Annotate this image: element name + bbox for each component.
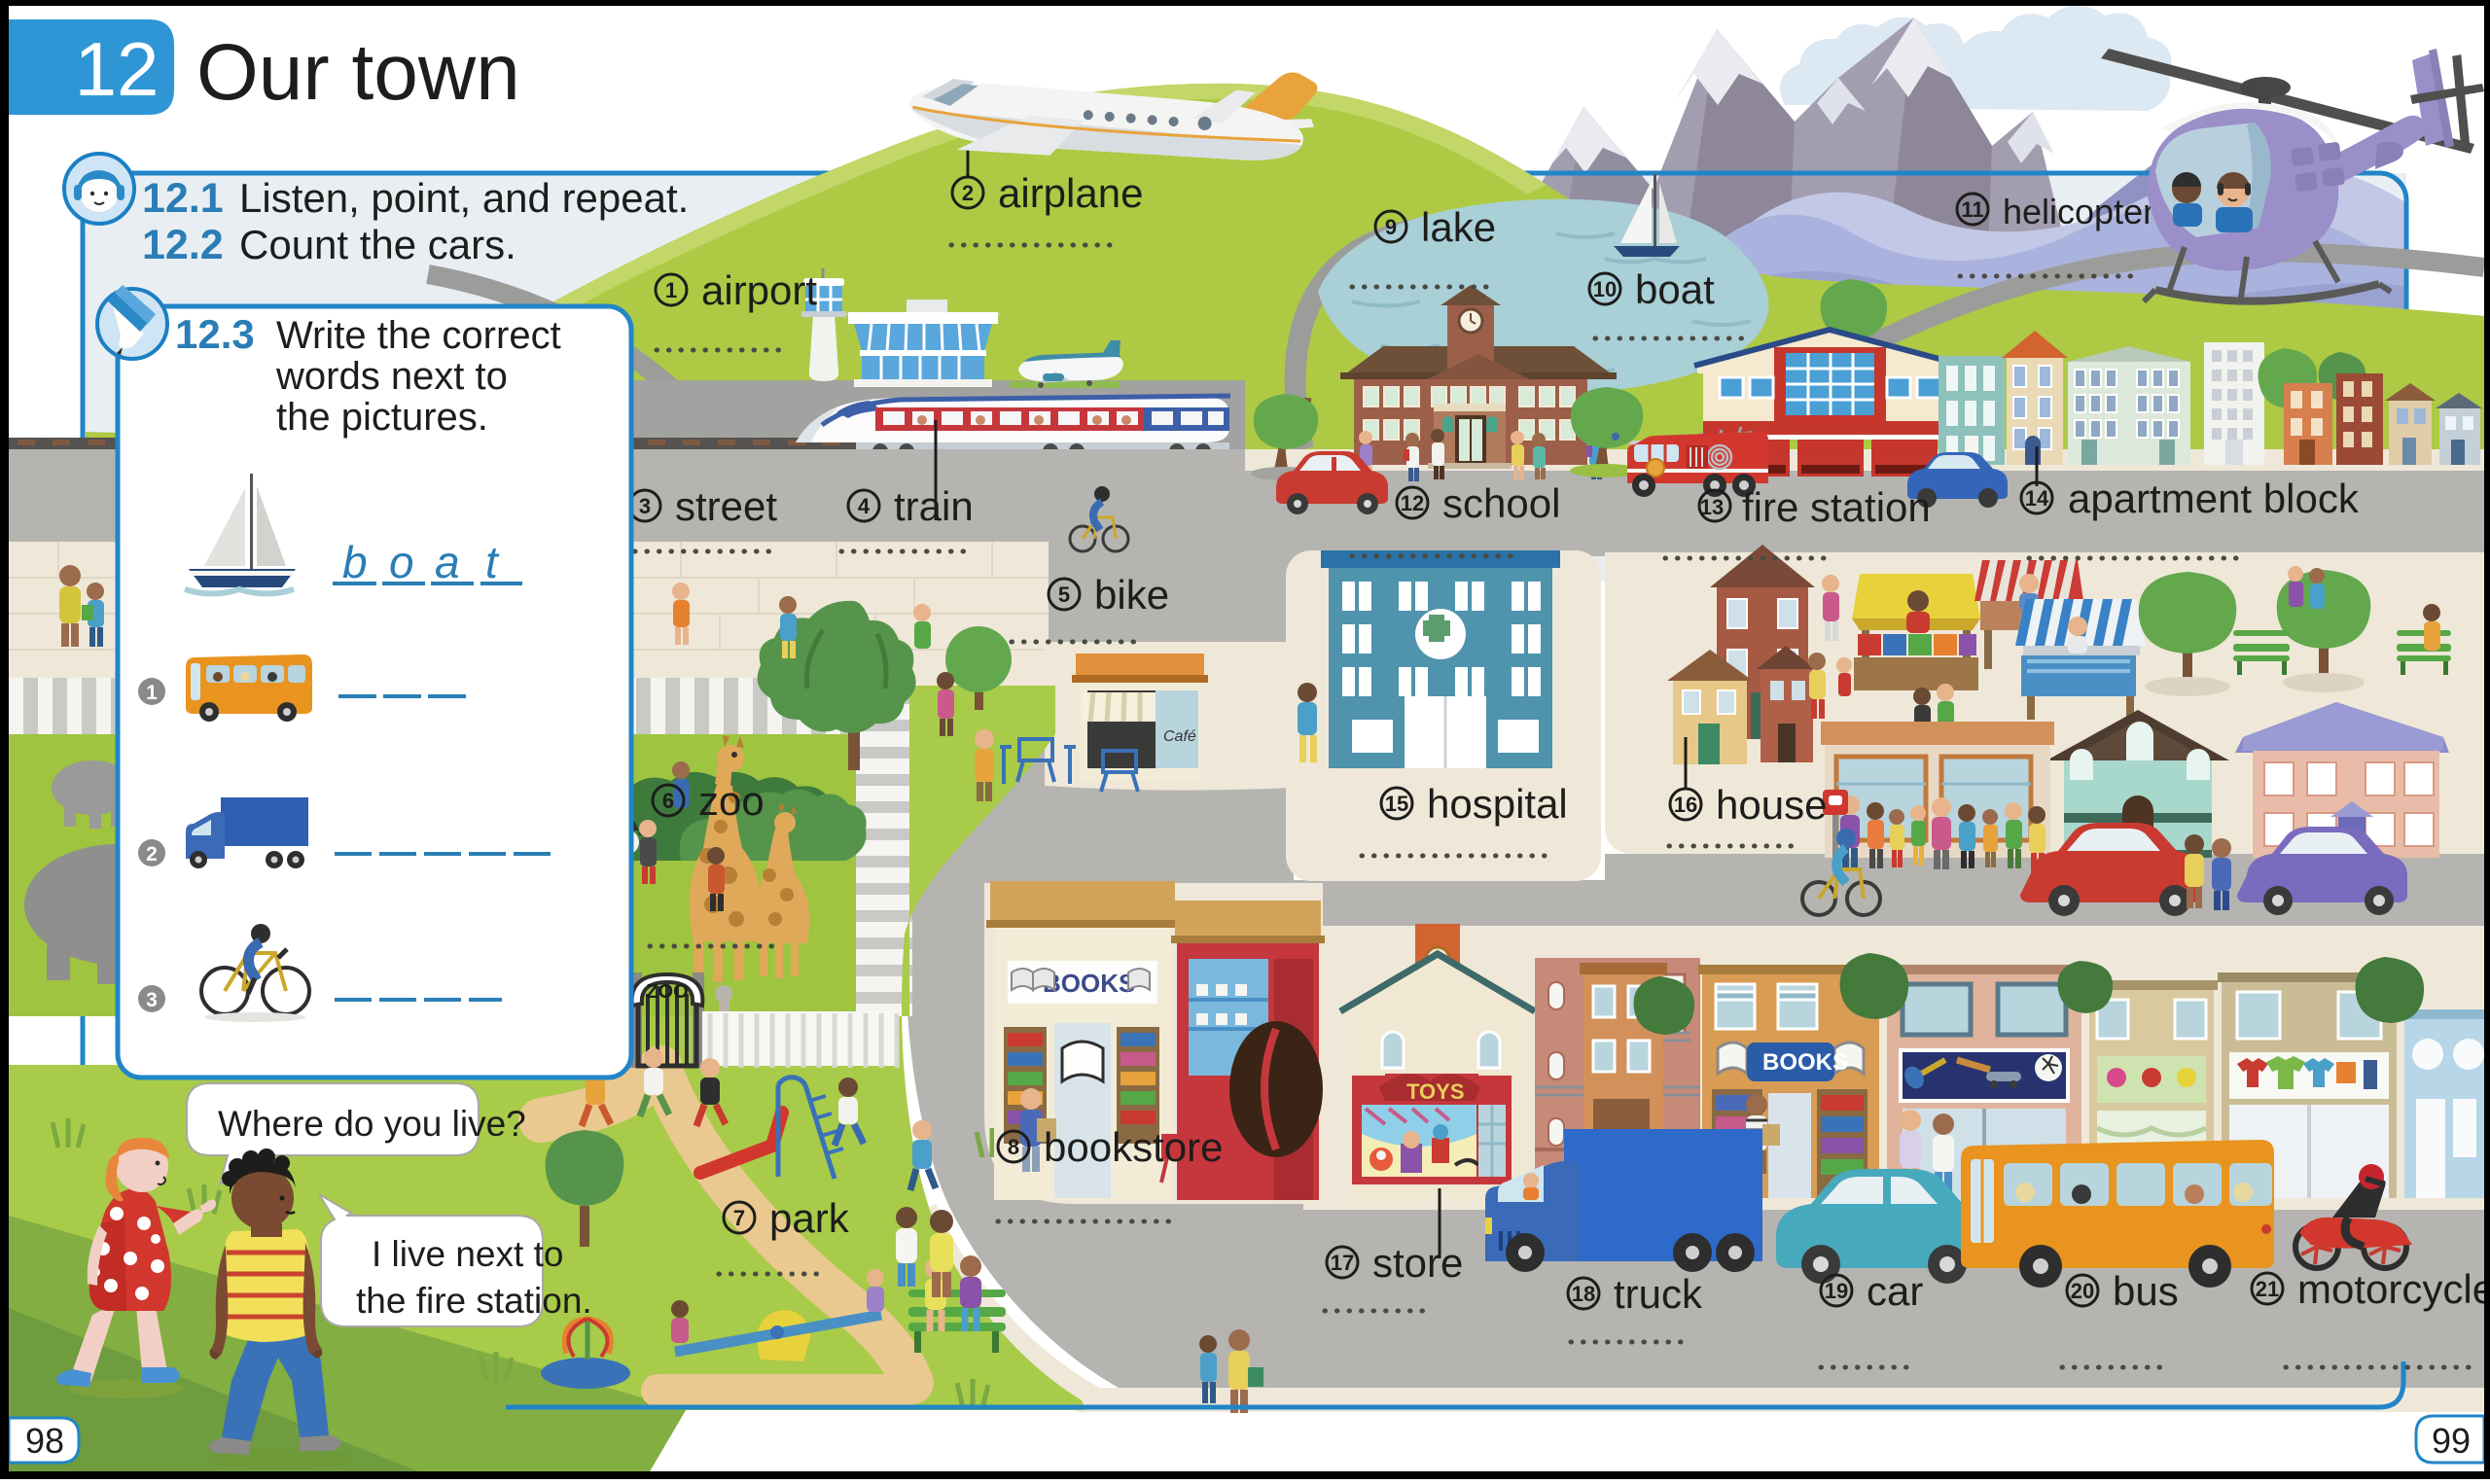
svg-text:hospital: hospital: [1427, 781, 1568, 827]
svg-text:zoo: zoo: [698, 778, 765, 824]
svg-text:11: 11: [1961, 197, 1983, 222]
svg-text:motorcycle: motorcycle: [2297, 1266, 2490, 1312]
svg-text:a: a: [435, 537, 460, 587]
svg-text:Write the correct: Write the correct: [276, 314, 561, 357]
svg-text:17: 17: [1331, 1251, 1354, 1275]
svg-text:bookstore: bookstore: [1044, 1124, 1223, 1170]
svg-text:Our town: Our town: [196, 28, 520, 117]
svg-text:4: 4: [858, 494, 871, 518]
svg-text:park: park: [769, 1195, 850, 1241]
svg-text:the pictures.: the pictures.: [276, 396, 488, 439]
svg-text:helicopter: helicopter: [2003, 192, 2154, 231]
svg-text:1: 1: [146, 682, 158, 704]
svg-text:18: 18: [1572, 1282, 1595, 1306]
svg-text:12.1: 12.1: [142, 175, 224, 222]
svg-text:98: 98: [25, 1421, 64, 1461]
svg-text:car: car: [1867, 1268, 1923, 1314]
svg-text:21: 21: [2256, 1277, 2279, 1301]
svg-text:TOYS: TOYS: [1406, 1079, 1465, 1104]
svg-text:12.2: 12.2: [142, 222, 224, 268]
svg-text:6: 6: [662, 789, 674, 813]
svg-text:Count the cars.: Count the cars.: [239, 222, 516, 267]
svg-text:20: 20: [2071, 1279, 2094, 1303]
svg-text:Where do you live?: Where do you live?: [218, 1104, 526, 1144]
svg-text:5: 5: [1058, 583, 1070, 607]
svg-text:BOOKS: BOOKS: [1762, 1049, 1848, 1076]
svg-text:school: school: [1442, 480, 1560, 526]
svg-text:12: 12: [75, 26, 160, 112]
svg-text:truck: truck: [1614, 1271, 1703, 1317]
svg-text:BOOKS: BOOKS: [1043, 969, 1135, 998]
svg-text:house: house: [1716, 782, 1827, 828]
svg-text:2: 2: [962, 181, 974, 205]
svg-text:t: t: [485, 537, 500, 587]
svg-text:9: 9: [1385, 215, 1397, 239]
svg-text:Listen, point, and repeat.: Listen, point, and repeat.: [239, 175, 689, 221]
svg-text:words next to: words next to: [275, 355, 508, 398]
svg-text:10: 10: [1593, 277, 1617, 301]
svg-text:apartment block: apartment block: [2068, 476, 2360, 521]
svg-text:I live next to: I live next to: [372, 1234, 563, 1274]
svg-text:8: 8: [1008, 1135, 1019, 1159]
svg-text:3: 3: [639, 494, 651, 518]
svg-text:19: 19: [1825, 1279, 1848, 1303]
svg-text:14: 14: [2025, 486, 2049, 511]
svg-text:fire station: fire station: [1742, 484, 1931, 530]
svg-text:99: 99: [2432, 1421, 2471, 1461]
svg-text:o: o: [389, 537, 414, 587]
svg-text:1: 1: [665, 278, 677, 302]
svg-text:7: 7: [733, 1206, 745, 1230]
svg-text:boat: boat: [1635, 266, 1715, 312]
svg-text:ZOO: ZOO: [646, 981, 688, 1003]
svg-text:bike: bike: [1094, 572, 1169, 618]
svg-text:15: 15: [1385, 792, 1408, 816]
svg-text:bus: bus: [2113, 1268, 2179, 1314]
svg-text:street: street: [675, 483, 777, 529]
svg-text:airport: airport: [701, 267, 817, 313]
svg-text:12: 12: [1401, 491, 1424, 515]
svg-text:lake: lake: [1421, 204, 1496, 250]
svg-text:b: b: [342, 537, 368, 587]
svg-text:3: 3: [146, 989, 158, 1011]
svg-text:train: train: [894, 483, 974, 529]
svg-text:2: 2: [146, 843, 158, 866]
svg-text:16: 16: [1674, 793, 1697, 817]
svg-text:Café: Café: [1163, 728, 1196, 745]
svg-text:12.3: 12.3: [175, 311, 255, 357]
svg-text:airplane: airplane: [998, 170, 1143, 216]
svg-text:the fire station.: the fire station.: [356, 1281, 592, 1321]
svg-text:store: store: [1372, 1240, 1463, 1286]
svg-text:13: 13: [1700, 495, 1724, 519]
